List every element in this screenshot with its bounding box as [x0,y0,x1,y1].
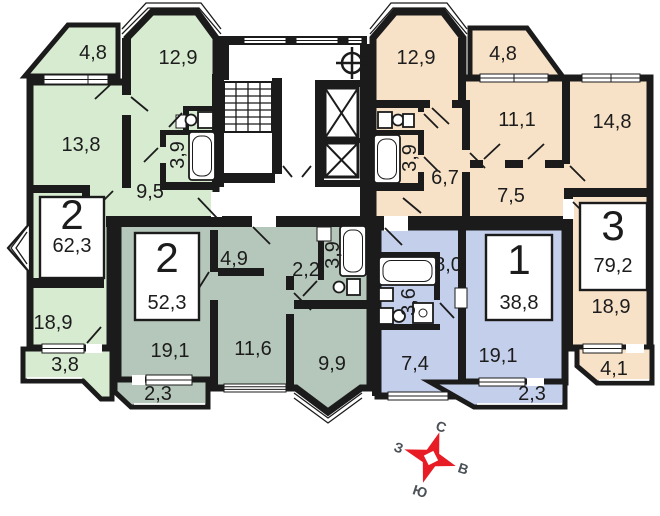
apartment-label-center-right: 1 38,8 [486,235,552,320]
room-area-label: 4,8 [489,43,517,65]
entrance-wall [216,36,367,45]
room-area-label: 6,7 [431,167,459,189]
compass-west-label: З [392,439,406,457]
apartment-number: 2 [60,191,83,238]
room-area-label: 13,8 [62,134,101,156]
compass-rose: С В Ю З [381,407,481,511]
room-area-label: 18,9 [592,296,631,318]
duct-box [455,288,467,308]
floor-plan-page: 2 62,3 2 52,3 1 38,8 3 79,2 4,8 12,9 13,… [0,0,660,516]
apartment-label-center-left: 2 52,3 [135,233,199,320]
room-area-label: 3,9 [322,241,344,269]
room-area-label: 4,1 [600,358,628,380]
toilet-icon [334,279,361,295]
elevator-icon [325,88,358,138]
room-area-label: 12,9 [159,47,198,69]
room-area-label: 12,9 [397,47,436,69]
apartment-total-area: 62,3 [53,235,92,257]
apartment-number: 1 [507,236,530,283]
room-area-label: 2,2 [292,259,320,281]
apartment-label-left: 2 62,3 [40,191,104,278]
room-area-label: 14,8 [593,111,632,133]
staircase [212,74,282,187]
toilet-icon [186,112,214,128]
room-area-label: 9,9 [318,353,346,375]
room-area-label: 18,9 [34,312,73,334]
bathtub-icon [189,132,215,180]
room-area-label: 7,4 [401,353,429,375]
apartment-number: 3 [601,202,624,249]
corridor-wall [106,216,572,227]
room-area-label: 3,9 [399,144,421,172]
room-area-label: 8,0 [434,254,462,276]
room-area-label: 3,6 [398,288,420,316]
room-area-label: 2,3 [518,383,546,405]
apartment-label-right: 3 79,2 [580,202,647,290]
apartment-number: 2 [155,234,178,281]
room-area-label: 7,5 [497,185,525,207]
toilet-icon [378,112,404,128]
room-area-label: 19,1 [151,340,190,362]
room-area-label: 4,8 [79,42,107,64]
apartment-total-area: 79,2 [594,255,633,277]
compass-east-label: В [456,459,471,477]
compass-north-label: С [434,417,449,435]
apartment-total-area: 38,8 [500,292,539,314]
duct-box [317,227,331,241]
room-area-label: 19,1 [479,345,518,367]
room-area-label: 4,9 [220,248,248,270]
room-area-label: 3,9 [167,141,189,169]
bathtub-icon [374,135,400,183]
compass-south-label: Ю [411,481,430,501]
building-core [212,36,370,222]
elevator-shaft [315,44,370,222]
apartment-total-area: 52,3 [148,292,187,314]
room-area-label: 11,1 [498,109,535,131]
bathtub-icon [379,257,436,285]
room-area-label: 2,3 [144,383,172,405]
floor-plan-canvas: 2 62,3 2 52,3 1 38,8 3 79,2 4,8 12,9 13,… [0,0,660,516]
room-area-label: 3,8 [51,354,79,376]
room-area-label: 11,6 [234,338,271,360]
washer-icon [379,288,393,301]
elevator-icon [325,143,358,177]
room-area-label: 9,5 [136,181,164,203]
sink-icon [403,114,414,127]
